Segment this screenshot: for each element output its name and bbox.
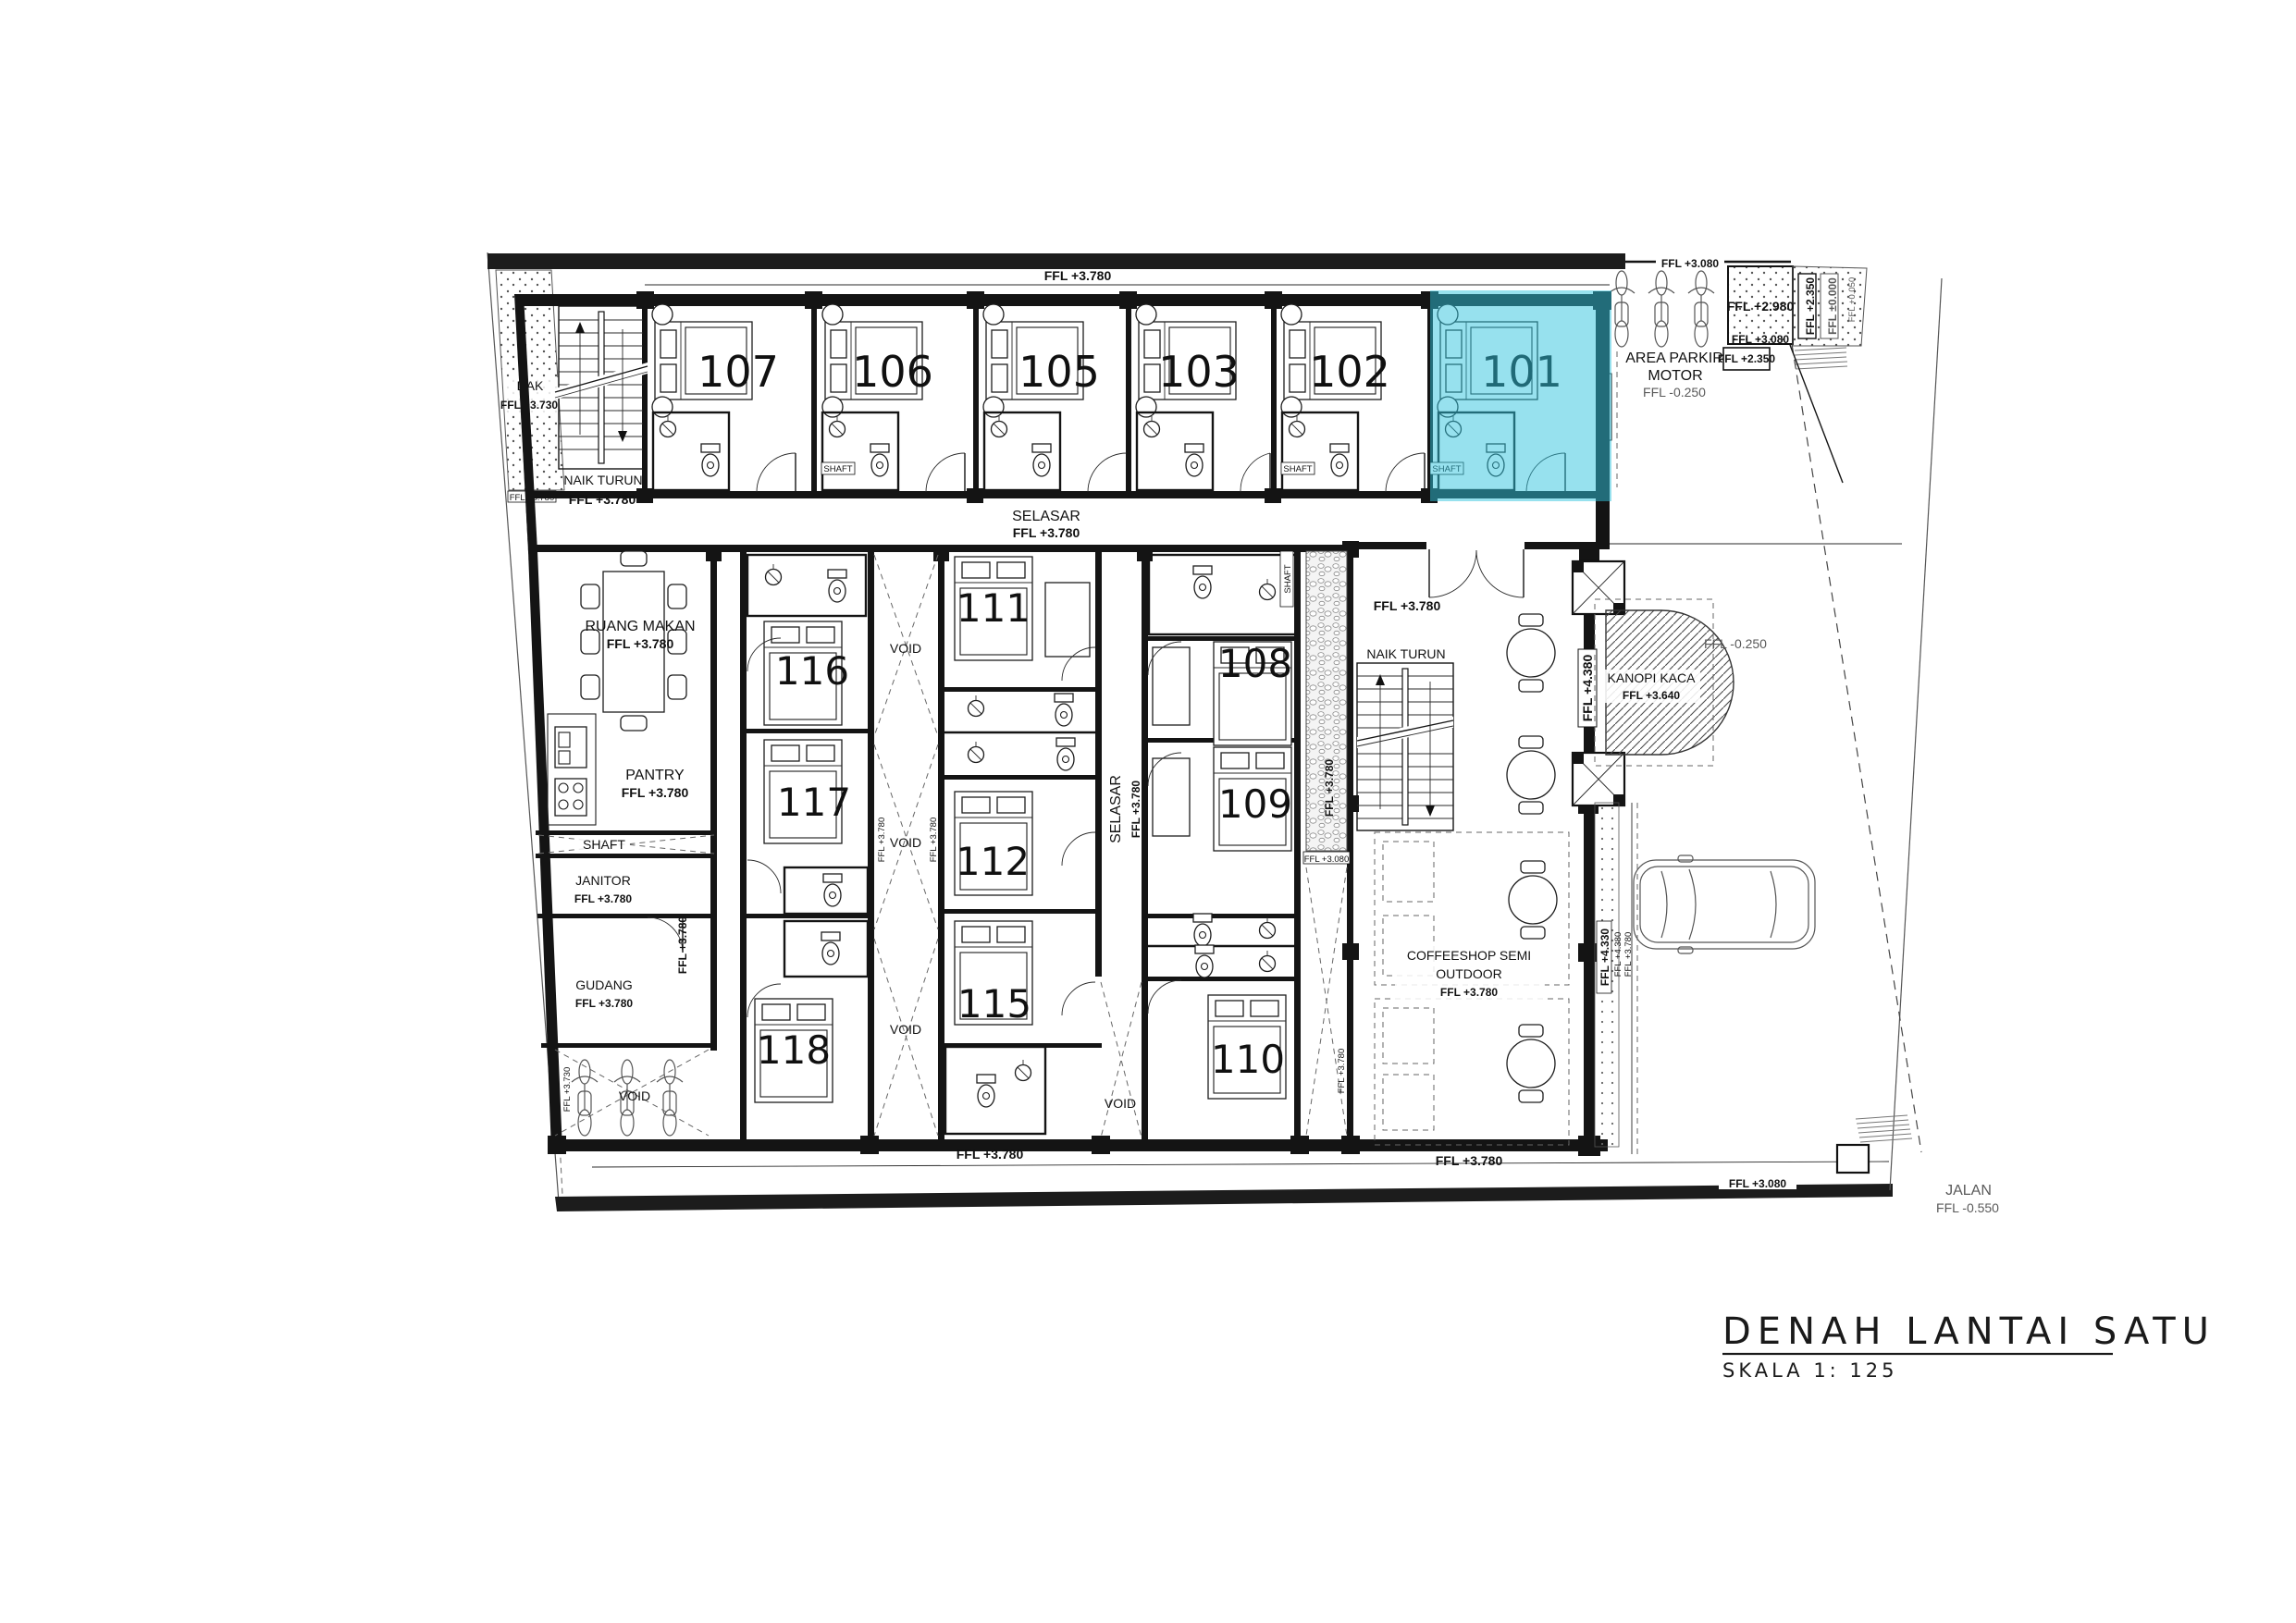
pantry-ffl: FFL +3.780 <box>622 785 689 800</box>
room-117-number: 117 <box>777 780 851 825</box>
coffeeshop-table-icon <box>1509 861 1557 939</box>
coffeeshop-table-icon <box>1507 1025 1555 1102</box>
ffl-bottom-right: FFL +3.080 <box>1729 1177 1786 1190</box>
motorcycle-icon <box>1688 271 1714 347</box>
utility-column: RUANG MAKAN FFL +3.780 PANTRY FFL +3.780… <box>538 551 714 1136</box>
room-105-number: 105 <box>1018 347 1100 397</box>
void-label-2: VOID <box>890 835 921 850</box>
area-parkir-ffl: FFL -0.250 <box>1643 385 1706 400</box>
ffl-entry-edge: FFL +3.080 <box>1732 333 1789 346</box>
ffl-band-1: FFL +4.330 <box>1599 928 1611 986</box>
room-110: 110 <box>1148 980 1286 1099</box>
lobby-table-icon <box>1507 736 1555 814</box>
stairs-top-left: NAIK TURUN FFL +3.780 <box>555 306 648 507</box>
void-strip: VOID VOID VOID FFL +3.780 FFL +3.780 <box>874 555 939 1136</box>
room-108: 108 <box>1148 555 1297 745</box>
bath-band-111-112 <box>944 694 1102 770</box>
room-111: 111 <box>955 557 1095 681</box>
kanopi-ffl: FFL +3.640 <box>1623 689 1680 702</box>
room-110-number: 110 <box>1211 1037 1285 1082</box>
drawing-scale: SKALA 1: 125 <box>1722 1359 1898 1382</box>
selasar-top: SELASAR FFL +3.780 <box>1012 509 1080 540</box>
ffl-void-right: FFL +3.780 <box>1337 1049 1347 1094</box>
naik-turun-top-label: NAIK TURUN <box>563 473 642 487</box>
gate <box>1837 1115 1912 1173</box>
lobby-right-band: FFL +4.330 FFL +4.380 FFL +3.780 <box>1595 803 1637 1154</box>
room-111-number: 111 <box>957 585 1031 631</box>
shaft-tag-1: SHAFT <box>823 464 852 474</box>
room-105: 105 <box>983 304 1127 492</box>
left-room-column: 116 117 118 <box>747 555 868 1102</box>
room-106: 106 SHAFT <box>821 304 965 492</box>
room-107-number: 107 <box>697 347 779 397</box>
room-116-number: 116 <box>775 648 849 694</box>
title-block: DENAH LANTAI SATU SKALA 1: 125 <box>1722 1310 2216 1382</box>
lobby-ffl: FFL +3.780 <box>1374 598 1441 613</box>
lobby-stairs-label: NAIK TURUN <box>1366 646 1445 661</box>
gudang-label: GUDANG <box>575 977 632 992</box>
area-parkir-label-2: MOTOR <box>1648 368 1702 384</box>
area-parkir-label-1: AREA PARKIR <box>1625 350 1723 366</box>
selasar-v-ffl: FFL +3.780 <box>1129 781 1142 838</box>
room-118-number: 118 <box>757 1027 831 1073</box>
shaft-tag-2: SHAFT <box>1283 464 1312 474</box>
room-101-highlight[interactable] <box>1430 290 1611 501</box>
ffl-yard: FFL -0.250 <box>1704 636 1767 651</box>
janitor-ffl: FFL +3.780 <box>574 892 632 905</box>
janitor: JANITOR FFL +3.780 <box>574 873 683 953</box>
coffeeshop-label-2: OUTDOOR <box>1436 966 1502 981</box>
ffl-void-bl: FFL +3.730 <box>562 1067 573 1113</box>
wall-pilaster-2 <box>1573 753 1624 805</box>
right-property-line <box>1890 278 1942 1190</box>
selasar-vertical: SELASAR FFL +3.780 VOID <box>1101 775 1142 1137</box>
gudang: GUDANG FFL +3.780 <box>575 977 633 1010</box>
lobby-table-icon <box>1507 614 1555 692</box>
ffl-top-strip: FFL +3.780 <box>1044 268 1112 283</box>
jalan: JALAN FFL -0.550 <box>1936 1183 1999 1215</box>
ffl-walkway-end: FFL +3.080 <box>1304 855 1350 865</box>
shaft-tag-4: SHAFT <box>1283 564 1293 593</box>
ffl-top-fence: FFL +3.080 <box>1661 257 1719 270</box>
ffl-band-2: FFL +4.380 <box>1613 932 1623 977</box>
selasar-v-label: SELASAR <box>1108 775 1124 843</box>
room-107: 107 <box>652 304 796 492</box>
selasar-label: SELASAR <box>1012 509 1080 524</box>
floor-plan-svg: FFL +3.080 FFL +2.980 FFL +3.080 FFL +2.… <box>0 0 2296 1623</box>
lobby: FFL +3.780 NAIK TURUN FFL +4.380 <box>1357 549 1624 830</box>
pantry-label: PANTRY <box>625 768 685 783</box>
walkway: FFL +3.780 FFL +3.080 FFL +3.780 <box>1303 551 1350 1136</box>
room-115: 115 <box>945 921 1095 1134</box>
room-102-number: 102 <box>1309 347 1390 397</box>
right-room-column: 108 109 SHAFT 110 <box>1147 551 1301 1099</box>
ruang-makan: RUANG MAKAN FFL +3.780 <box>581 551 696 731</box>
ffl-entry-steps: FFL +2.980 <box>1727 299 1795 314</box>
drawing-title: DENAH LANTAI SATU <box>1722 1310 2216 1353</box>
yard: KANOPI KACA FFL +3.640 FFL -0.250 <box>1595 599 1815 953</box>
selasar-ffl: FFL +3.780 <box>1013 525 1080 540</box>
kanopi-label: KANOPI KACA <box>1608 670 1697 685</box>
room-103: 103 <box>1136 304 1270 492</box>
ruang-makan-ffl: FFL +3.780 <box>607 636 674 651</box>
room-115-number: 115 <box>957 981 1031 1027</box>
coffeeshop: COFFEESHOP SEMI OUTDOOR FFL +3.780 <box>1375 832 1569 1145</box>
shaft-room-label: SHAFT <box>583 837 625 852</box>
floor-plan-page: FFL +3.080 FFL +2.980 FFL +3.080 FFL +2.… <box>0 0 2296 1623</box>
coffeeshop-ffl: FFL +3.780 <box>1440 986 1498 999</box>
ruang-makan-label: RUANG MAKAN <box>585 619 695 634</box>
room-106-number: 106 <box>852 347 933 397</box>
ffl-ramp: FFL +2.350 <box>1718 352 1775 365</box>
naik-turun-top-ffl: FFL +3.780 <box>569 492 636 507</box>
entry-grille <box>1795 348 1847 369</box>
void-label-3: VOID <box>890 1022 921 1037</box>
void-bl-label: VOID <box>619 1088 650 1103</box>
room-108-number: 108 <box>1218 641 1292 686</box>
motorcycle-icon <box>1609 271 1635 347</box>
room-112-number: 112 <box>956 839 1030 884</box>
jalan-label: JALAN <box>1945 1183 1992 1199</box>
motorcycle-icon <box>1648 271 1674 347</box>
void-label-1: VOID <box>890 641 921 656</box>
shaft-room: SHAFT <box>538 835 714 854</box>
room-112: 112 <box>955 792 1095 895</box>
void-bottom-left: VOID FFL +3.730 <box>555 1050 709 1136</box>
top-fence-wall <box>488 253 1625 269</box>
room-118: 118 <box>747 921 868 1102</box>
janitor-label: JANITOR <box>575 873 631 888</box>
car-icon <box>1634 855 1815 953</box>
ffl-hall-left: FFL +3.780 <box>676 916 689 974</box>
ffl-drop-off: FFL +4.380 <box>1580 655 1595 722</box>
wall-pilaster-1 <box>1573 561 1624 614</box>
jalan-ffl: FFL -0.550 <box>1936 1200 1999 1215</box>
room-109-number: 109 <box>1218 781 1292 827</box>
ffl-gate-2: FFL ±0.000 <box>1826 277 1839 335</box>
ffl-gate-1: FFL +2.350 <box>1804 277 1817 335</box>
room-103-number: 103 <box>1158 347 1240 397</box>
ffl-walkway: FFL +3.780 <box>1323 759 1336 817</box>
ffl-void-1: FFL +3.780 <box>877 818 887 863</box>
ffl-void-2: FFL +3.780 <box>929 818 939 863</box>
room-102: 102 SHAFT <box>1281 304 1425 492</box>
pantry: PANTRY FFL +3.780 <box>548 714 688 825</box>
room-109: 109 <box>1148 747 1292 851</box>
gudang-ffl: FFL +3.780 <box>575 997 633 1010</box>
room-117: 117 <box>747 740 868 914</box>
ffl-gate-3: FFL +0.050 <box>1847 277 1858 323</box>
coffeeshop-label-1: COFFEESHOP SEMI <box>1407 948 1531 963</box>
room-116: 116 <box>747 555 866 725</box>
ffl-bottom-2: FFL +3.780 <box>1436 1153 1503 1168</box>
ffl-bottom-1: FFL +3.780 <box>957 1147 1024 1162</box>
area-parkir-motor: AREA PARKIR MOTOR FFL -0.250 FFL +3.780 <box>1598 271 1723 487</box>
bottom-fence-wall <box>555 1184 1893 1211</box>
void-corridor-label: VOID <box>1105 1096 1136 1111</box>
stairs-lobby <box>1357 663 1453 830</box>
